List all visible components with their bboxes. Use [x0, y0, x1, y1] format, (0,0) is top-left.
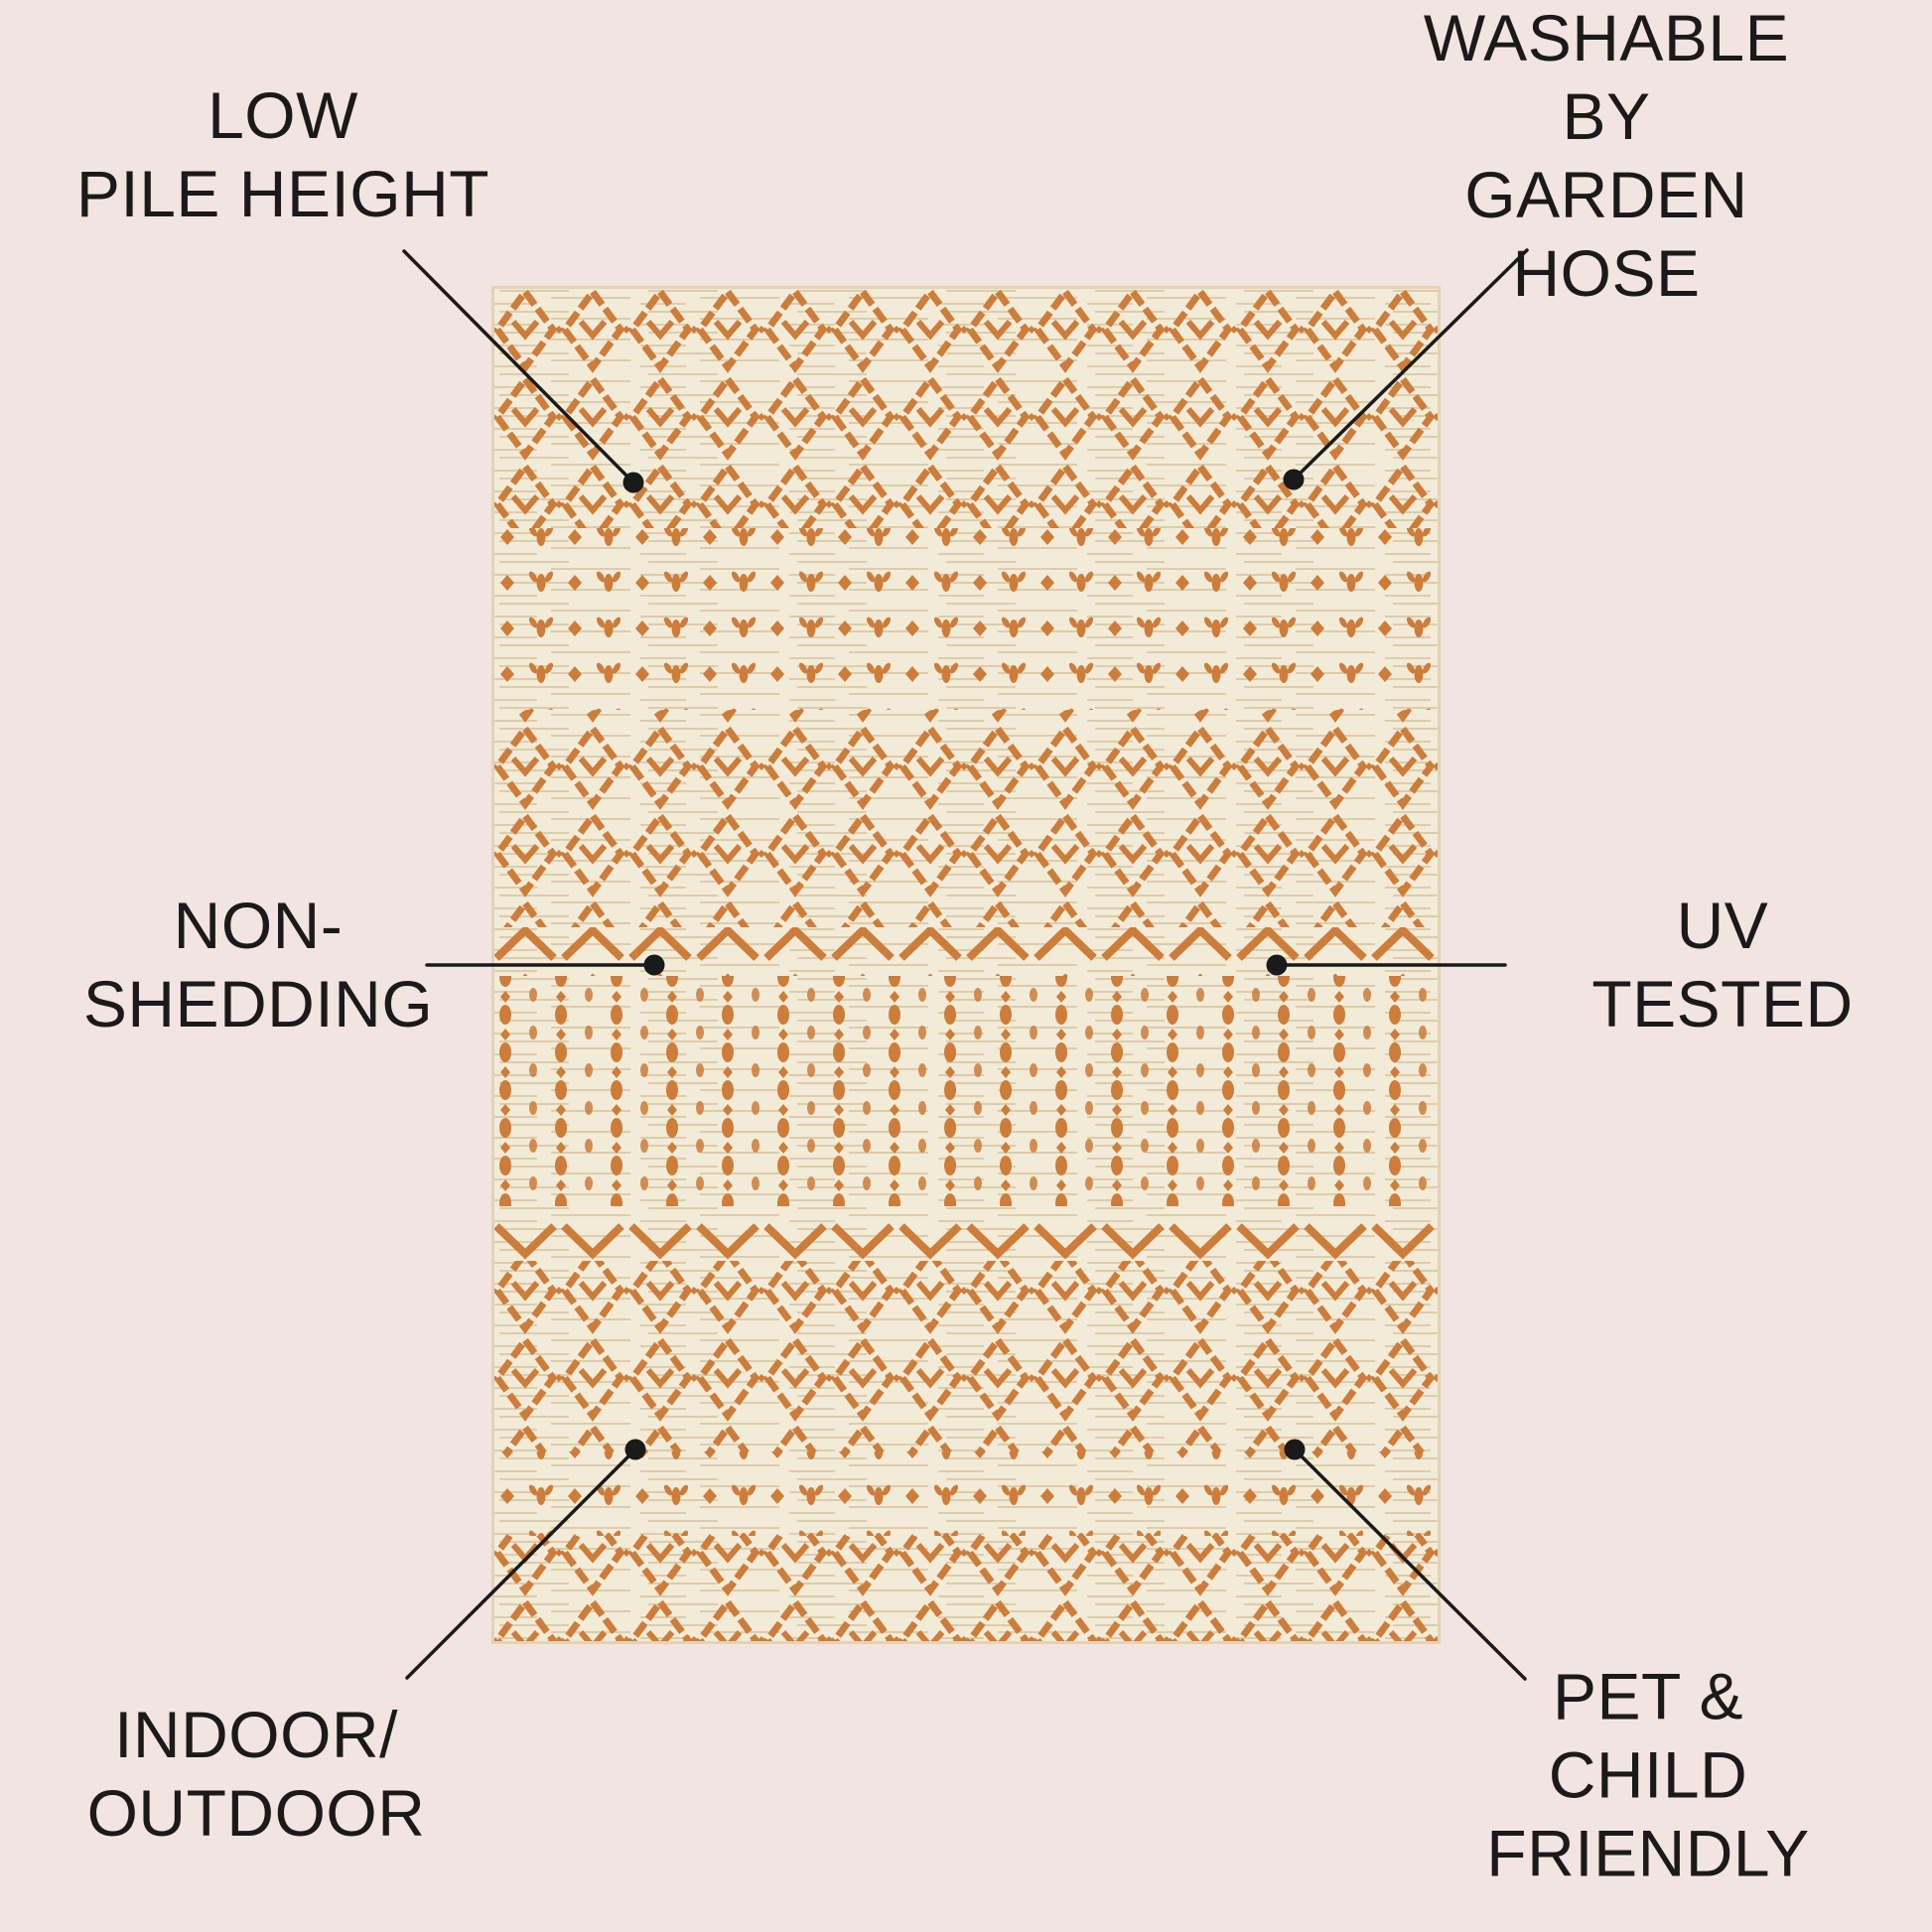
callout-label-uv-tested: UV TESTED — [1591, 887, 1853, 1043]
rug-features-infographic: LOW PILE HEIGHT WASHABLE BY GARDEN HOSE … — [0, 0, 1932, 1932]
callout-label-pet-child-friendly: PET & CHILD FRIENDLY — [1486, 1658, 1810, 1893]
callout-label-indoor-outdoor: INDOOR/ OUTDOOR — [87, 1696, 426, 1853]
callout-label-washable-by-garden-hose: WASHABLE BY GARDEN HOSE — [1424, 0, 1789, 313]
rug-image — [491, 286, 1441, 1644]
callout-label-low-pile-height: LOW PILE HEIGHT — [76, 76, 489, 233]
callout-label-non-shedding: NON- SHEDDING — [83, 887, 433, 1043]
rug-pattern-bands — [491, 286, 1441, 1644]
